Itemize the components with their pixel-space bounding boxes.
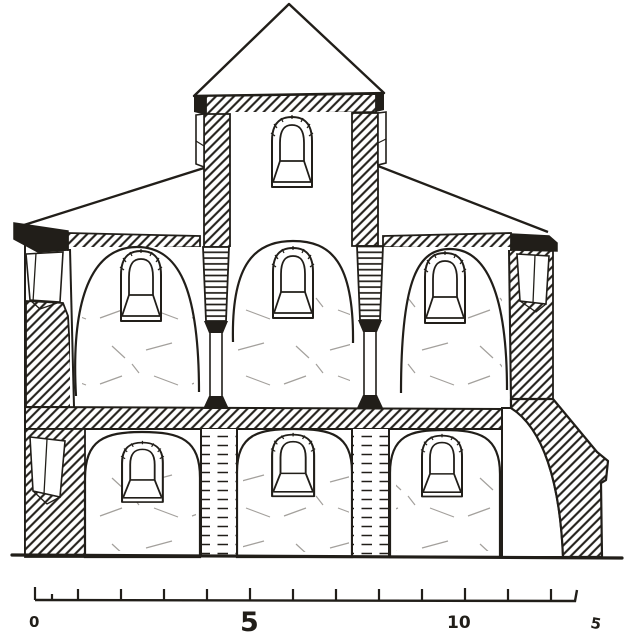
gallery-window-left — [120, 249, 162, 321]
lower-pier-right — [352, 429, 389, 557]
left-wall-masonry-upper — [26, 301, 73, 407]
left-wall-chamfer-panel-lower — [30, 437, 65, 497]
architectural-section-drawing: 0 5 10 5 — [0, 0, 636, 639]
scale-label-10: 10 — [447, 613, 471, 633]
pier-shaft-banded-right — [357, 246, 383, 320]
tower-eaves-corner-left — [194, 96, 206, 115]
tower-eaves-band — [206, 94, 376, 115]
church-cross-section-sketch: 0 5 10 5 — [0, 0, 636, 639]
aisle-window-right — [421, 434, 463, 497]
tower-eaves-corner-right — [376, 93, 384, 112]
tower-wall-left — [204, 114, 230, 247]
gallery-window-right — [424, 251, 466, 323]
scale-label-5: 5 — [240, 607, 259, 638]
aisle-window-left — [121, 441, 164, 502]
gallery-floor-band — [25, 407, 502, 429]
tower-wall-left-face — [196, 114, 204, 167]
nave-lower-window — [271, 433, 315, 496]
scale-label-0: 0 — [29, 613, 39, 631]
pier-shaft-banded-left — [203, 247, 229, 321]
left-wall-chamfer-panel-upper — [26, 252, 63, 302]
tower-arched-window — [271, 115, 313, 187]
right-outer-wall-upper — [509, 234, 557, 400]
tower-wall-right — [352, 113, 378, 246]
right-eaves-cornice — [511, 234, 557, 251]
lower-pier-left — [201, 429, 237, 557]
nave-upper-window — [272, 246, 314, 318]
tower-wall-right-face — [378, 112, 386, 165]
upper-storey — [70, 241, 511, 407]
